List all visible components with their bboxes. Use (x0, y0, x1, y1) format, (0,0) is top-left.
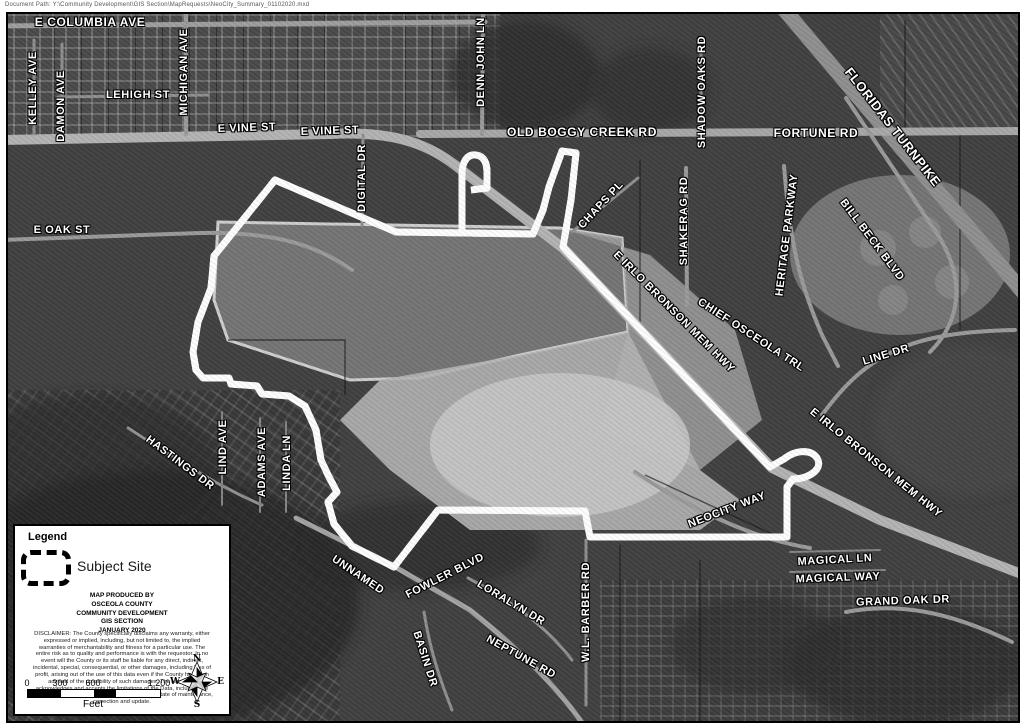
road-label-shadow-oaks-rd: SHADOW OAKS RD (696, 36, 708, 148)
road-label-damon-ave: DAMON AVE (55, 70, 67, 141)
scale-tick: 600 (85, 678, 100, 688)
document-path: Document Path: Y:\Community Development\… (5, 2, 309, 8)
road-label-old-boggy-creek-rd: OLD BOGGY CREEK RD (507, 125, 657, 139)
map-canvas: E COLUMBIA AVEKELLEY AVEDAMON AVELEHIGH … (6, 12, 1020, 723)
road-label-e-columbia-ave: E COLUMBIA AVE (35, 15, 146, 29)
scale-bar-graphic (27, 689, 161, 698)
road-label-digital-dr: DIGITAL DR (356, 144, 368, 212)
produced-by-line: MAP PRODUCED BY (15, 592, 229, 601)
scale-tick: 1,200 (148, 678, 171, 688)
road-label-adams-ave: ADAMS AVE (256, 427, 268, 497)
subject-site-symbol (21, 550, 71, 586)
produced-by-line: OSCEOLA COUNTY (15, 601, 229, 610)
road-label-e-vine-st: E VINE ST (301, 124, 360, 138)
bright-graded-pad (430, 373, 690, 517)
road-label-kelley-ave: KELLEY AVE (27, 51, 39, 125)
legend-panel: Legend Subject Site MAP PRODUCED BYOSCEO… (13, 524, 231, 716)
road-label-e-oak-st: E OAK ST (34, 224, 91, 236)
produced-by-line: GIS SECTION (15, 618, 229, 627)
map-produced-by: MAP PRODUCED BYOSCEOLA COUNTYCOMMUNITY D… (15, 592, 229, 636)
road-label-w-l-barber-rd: W.L. BARBER RD (580, 562, 592, 662)
compass-east: E (217, 677, 224, 687)
compass-south: S (194, 700, 201, 710)
produced-by-line: COMMUNITY DEVELOPMENT (15, 610, 229, 619)
road-label-lehigh-st: LEHIGH ST (106, 89, 170, 101)
compass-star (175, 660, 219, 704)
scale-tick: 0 (24, 678, 29, 688)
road-label-michigan-ave: MICHIGAN AVE (178, 28, 190, 115)
scale-tick: 300 (52, 678, 67, 688)
map-sheet: Document Path: Y:\Community Development\… (0, 0, 1024, 727)
scale-tick-labels: 03006001,200 (27, 678, 167, 688)
road-label-linda-ln: LINDA LN (281, 435, 293, 491)
compass-rose: N S E W (171, 656, 223, 708)
compass-west: W (170, 677, 180, 687)
road-label-fortune-rd: FORTUNE RD (774, 126, 859, 140)
road-label-e-vine-st: E VINE ST (218, 121, 277, 135)
road-label-denn-john-ln: DENN JOHN LN (475, 17, 487, 107)
subject-site-label: Subject Site (77, 558, 152, 574)
legend-title: Legend (28, 531, 67, 543)
compass-north: N (193, 654, 201, 664)
scale-bar: 03006001,200 Feet (27, 678, 167, 710)
road-label-lind-ave: LIND AVE (217, 420, 229, 475)
road-label-shakerag-rd: SHAKERAG RD (678, 177, 690, 266)
scale-unit-label: Feet (27, 699, 159, 710)
